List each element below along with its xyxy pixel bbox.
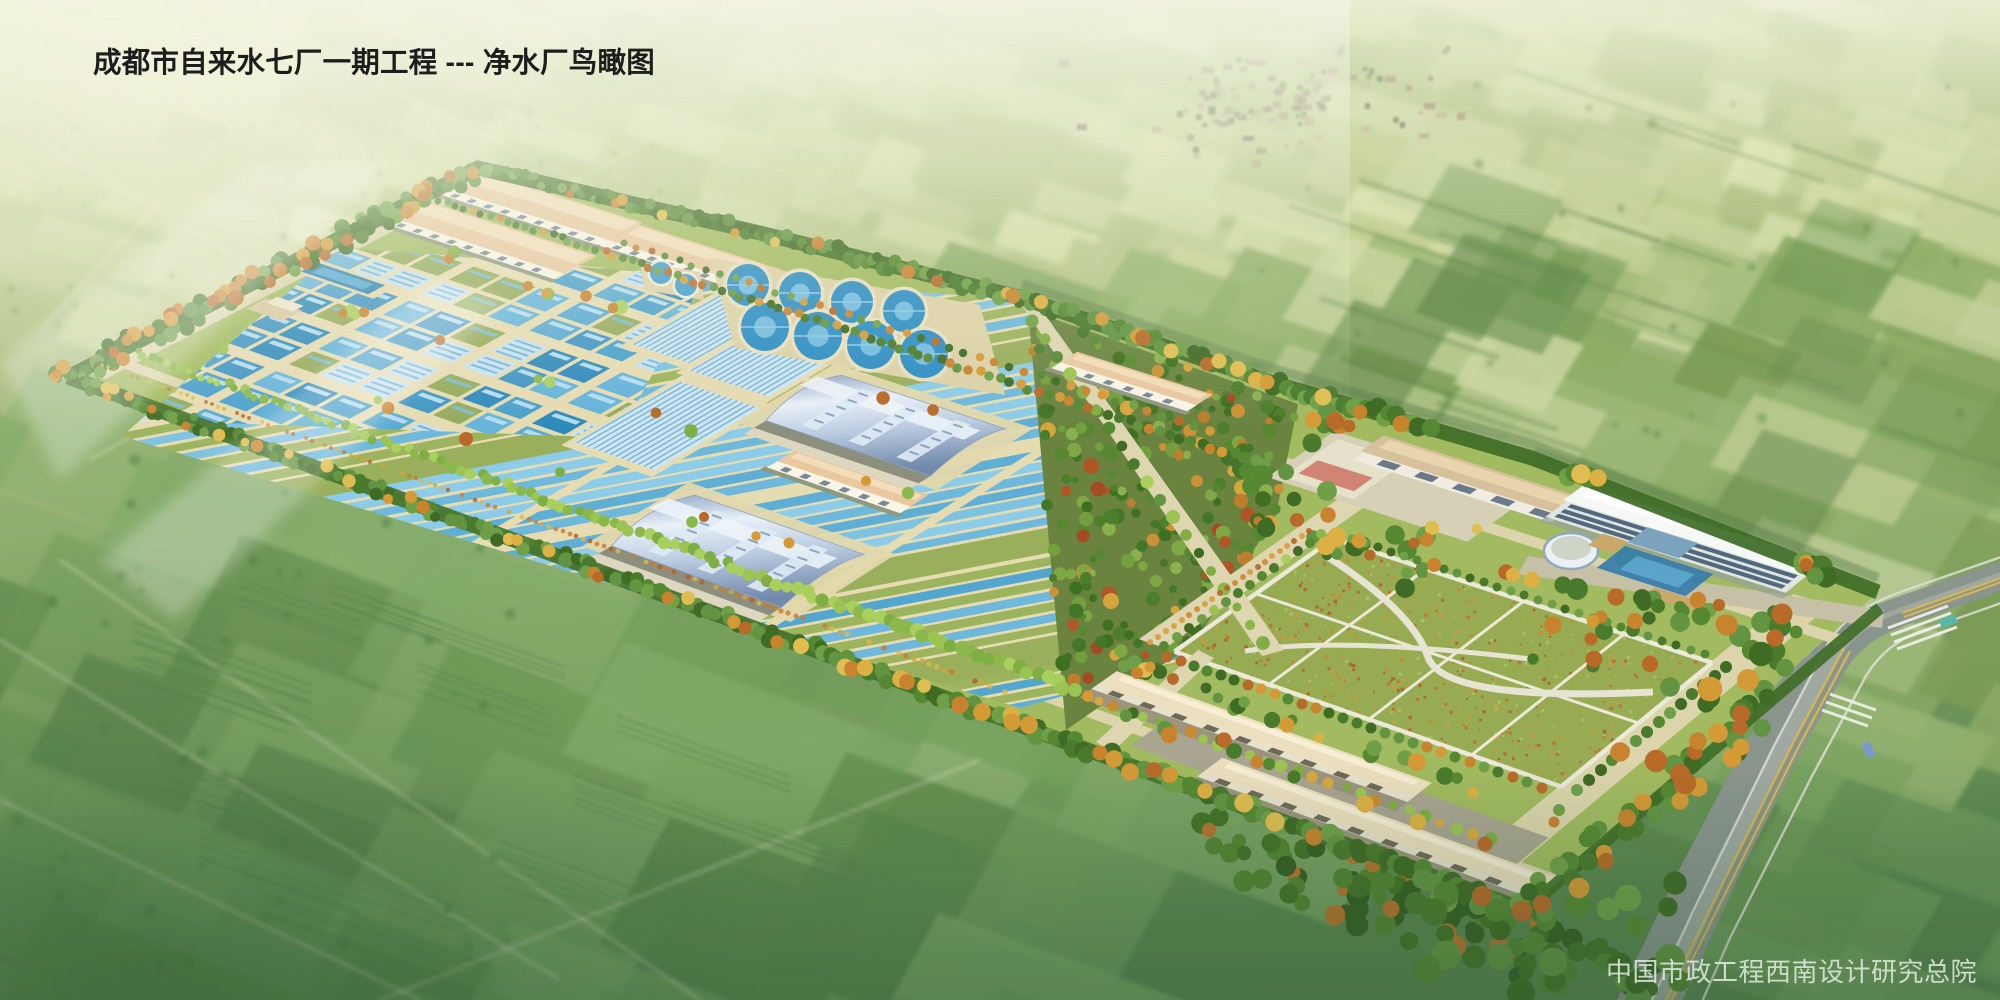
svg-text:中国市政工程西南设计研究总院: 中国市政工程西南设计研究总院	[1606, 957, 1977, 987]
svg-text:成都市自来水七厂一期工程 --- 净水厂鸟瞰图: 成都市自来水七厂一期工程 --- 净水厂鸟瞰图	[93, 46, 655, 79]
